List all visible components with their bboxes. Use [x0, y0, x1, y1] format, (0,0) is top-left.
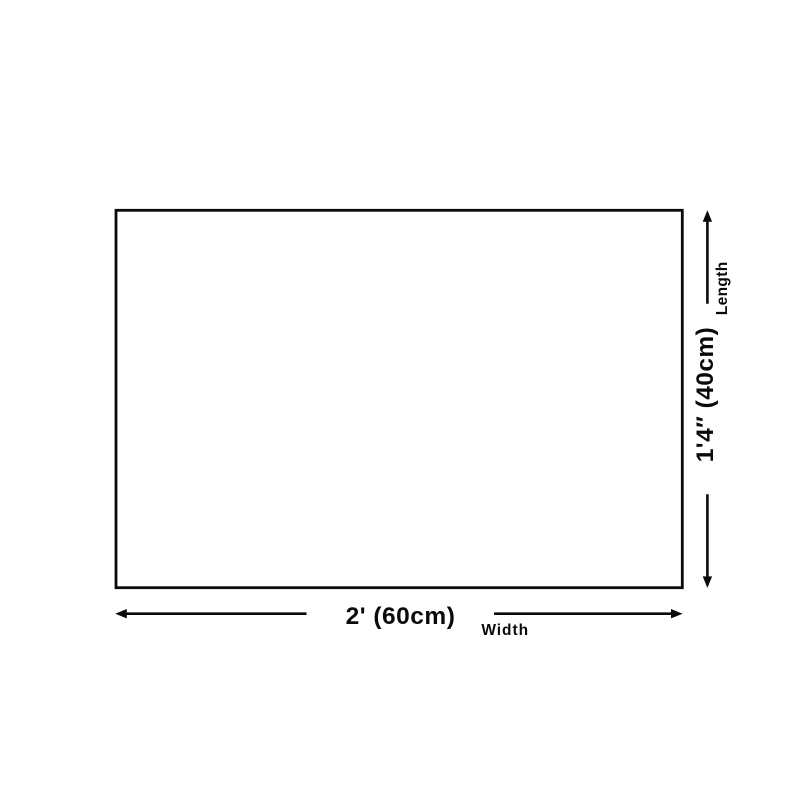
- svg-text:Length: Length: [714, 261, 731, 315]
- svg-text:2' (60cm): 2' (60cm): [346, 603, 456, 630]
- svg-text:1'4″ (40cm): 1'4″ (40cm): [692, 327, 719, 463]
- svg-text:Width: Width: [481, 622, 529, 639]
